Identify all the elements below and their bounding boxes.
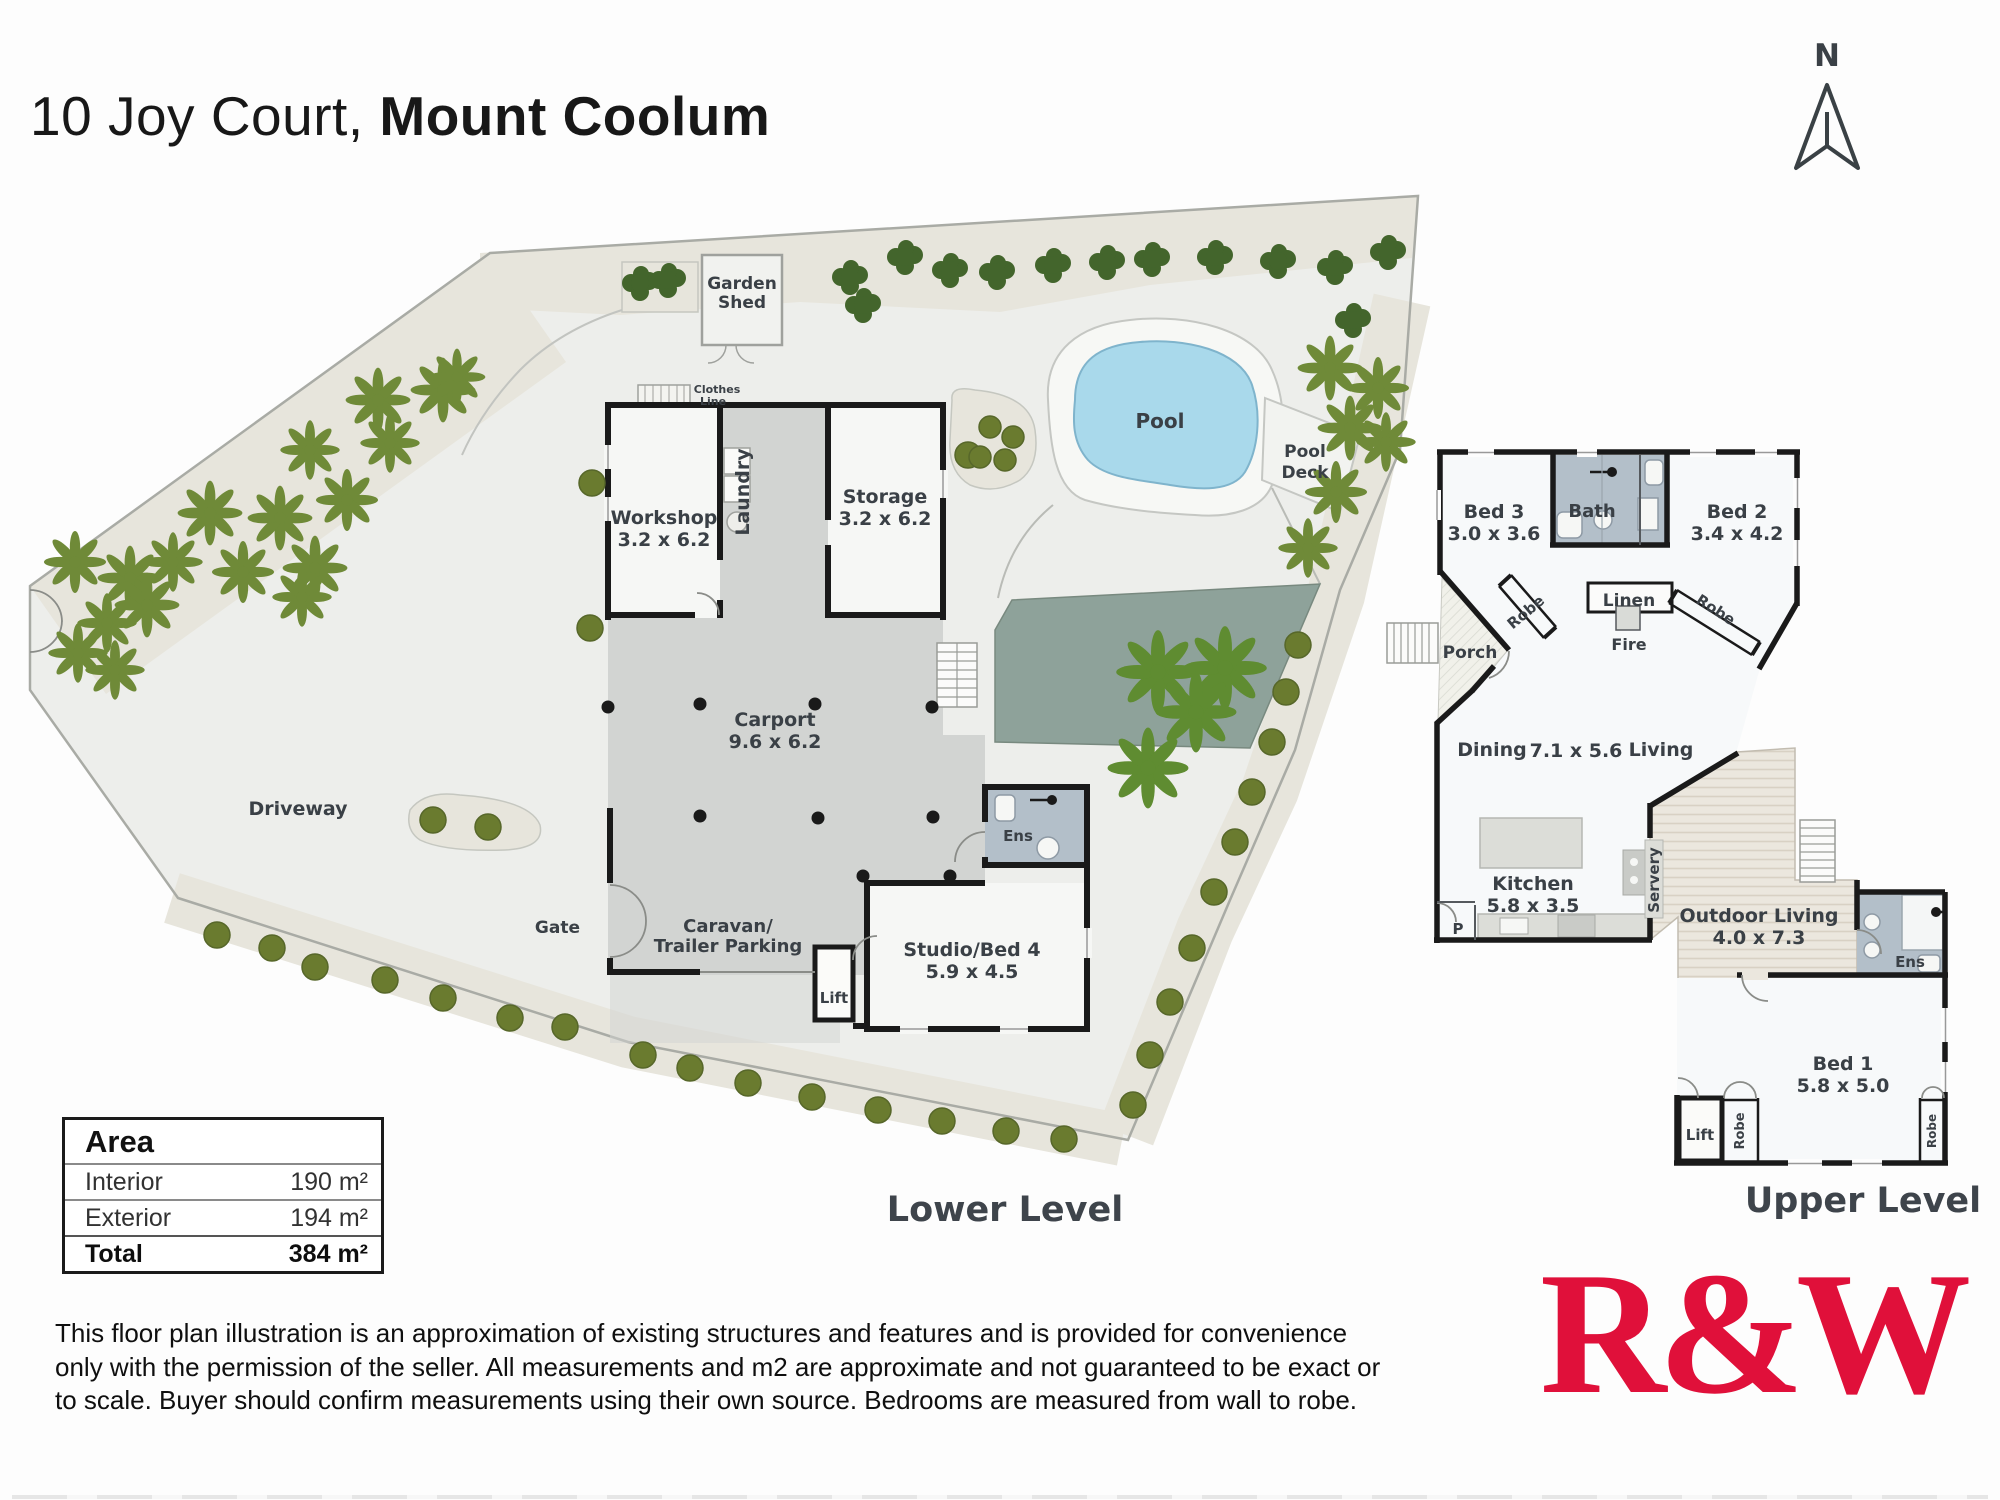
disclaimer-text: This floor plan illustration is an appro… xyxy=(55,1317,1380,1418)
area-row-value: 190 m² xyxy=(290,1168,368,1196)
bed3-dim: 3.0 x 3.6 xyxy=(1448,523,1541,545)
robe2-label: Robe xyxy=(1925,1114,1939,1148)
kitchen-label: Kitchen xyxy=(1492,873,1574,895)
north-label: N xyxy=(1814,38,1840,74)
kitchen-dim: 5.8 x 3.5 xyxy=(1487,895,1580,917)
storage-dim: 3.2 x 6.2 xyxy=(839,508,932,530)
area-row-label: Exterior xyxy=(85,1204,171,1232)
stairs-upper-right xyxy=(1800,820,1835,882)
gate-label: Gate xyxy=(535,918,580,938)
dining-label: Dining xyxy=(1457,739,1526,761)
north-arrow: N xyxy=(1796,38,1858,168)
area-row-total: Total 384 m² xyxy=(65,1235,381,1271)
studio-label: Studio/Bed 4 xyxy=(903,939,1040,961)
linen-label: Linen xyxy=(1603,591,1655,611)
ens-lower-label: Ens xyxy=(1003,827,1033,845)
outdoor-label: Outdoor Living xyxy=(1679,905,1838,927)
area-table-header: Area xyxy=(65,1120,381,1163)
area-row-value: 194 m² xyxy=(290,1204,368,1232)
pool-deck-label2: Deck xyxy=(1281,463,1329,483)
area-row-interior: Interior 190 m² xyxy=(65,1163,381,1199)
disclaimer-line2: only with the permission of the seller. … xyxy=(55,1351,1380,1385)
caravan-label: Caravan/ xyxy=(683,916,773,937)
bed1-label: Bed 1 xyxy=(1813,1053,1874,1075)
ens-upper-nook xyxy=(1902,895,1943,950)
bed2-dim: 3.4 x 4.2 xyxy=(1691,523,1784,545)
north-arrow-icon xyxy=(1796,85,1858,168)
studio-dim: 5.9 x 4.5 xyxy=(926,961,1019,983)
living-dim: 7.1 x 5.6 xyxy=(1530,740,1623,762)
caravan-label2: Trailer Parking xyxy=(654,936,803,957)
floorplan-page: 10 Joy Court, Mount Coolum xyxy=(0,0,2000,1500)
bed2-label: Bed 2 xyxy=(1707,501,1768,523)
living-label: Living xyxy=(1629,739,1694,761)
agency-logo: R&W xyxy=(1540,1246,1963,1421)
bed1-dim: 5.8 x 5.0 xyxy=(1797,1075,1890,1097)
workshop-dim: 3.2 x 6.2 xyxy=(618,529,711,551)
outdoor-dim: 4.0 x 7.3 xyxy=(1713,927,1806,949)
upper-level-plan: Bed 3 3.0 x 3.6 Bath Bed 2 3.4 x 4.2 Lin… xyxy=(1387,448,1950,1168)
area-total-label: Total xyxy=(85,1240,143,1268)
driveway-label: Driveway xyxy=(248,798,348,820)
area-total-value: 384 m² xyxy=(289,1240,368,1268)
storage-label: Storage xyxy=(843,486,928,508)
lower-level-title: Lower Level xyxy=(845,1190,1165,1230)
bed3-label: Bed 3 xyxy=(1464,501,1525,523)
garden-shed-label: Garden xyxy=(707,274,777,294)
porch-label: Porch xyxy=(1443,643,1498,663)
lower-level-plan: Garden Shed Clothes Line Workshop 3.2 x … xyxy=(30,196,1418,1152)
clothes-line-label2: Line xyxy=(700,395,726,408)
workshop-label: Workshop xyxy=(611,507,718,529)
lift-lower-room xyxy=(815,947,853,1020)
lift-upper-label: Lift xyxy=(1686,1126,1714,1144)
carport-label: Carport xyxy=(734,709,815,731)
ens-upper-label: Ens xyxy=(1895,953,1925,971)
area-row-exterior: Exterior 194 m² xyxy=(65,1199,381,1235)
bath-label: Bath xyxy=(1568,501,1615,522)
laundry-label: Laundry xyxy=(732,448,754,536)
upper-level-title: Upper Level xyxy=(1703,1181,2000,1221)
pool-deck-label: Pool xyxy=(1284,442,1326,462)
stairs-lower xyxy=(937,643,977,707)
disclaimer-line1: This floor plan illustration is an appro… xyxy=(55,1317,1380,1351)
scan-edge-artifact xyxy=(12,1495,1988,1499)
fire-label: Fire xyxy=(1611,635,1646,654)
stairs-upper-left xyxy=(1387,623,1438,663)
area-row-label: Interior xyxy=(85,1168,163,1196)
area-table: Area Interior 190 m² Exterior 194 m² Tot… xyxy=(62,1117,384,1274)
servery-label: Servery xyxy=(1645,847,1663,913)
disclaimer-line3: to scale. Buyer should confirm measureme… xyxy=(55,1384,1380,1418)
robe1-label: Robe xyxy=(1733,1112,1748,1149)
lift-lower-label: Lift xyxy=(820,989,848,1007)
pantry-label: P xyxy=(1453,920,1464,938)
pool-label: Pool xyxy=(1136,409,1185,433)
carport-dim: 9.6 x 6.2 xyxy=(729,731,822,753)
garden-shed-label2: Shed xyxy=(718,293,766,313)
